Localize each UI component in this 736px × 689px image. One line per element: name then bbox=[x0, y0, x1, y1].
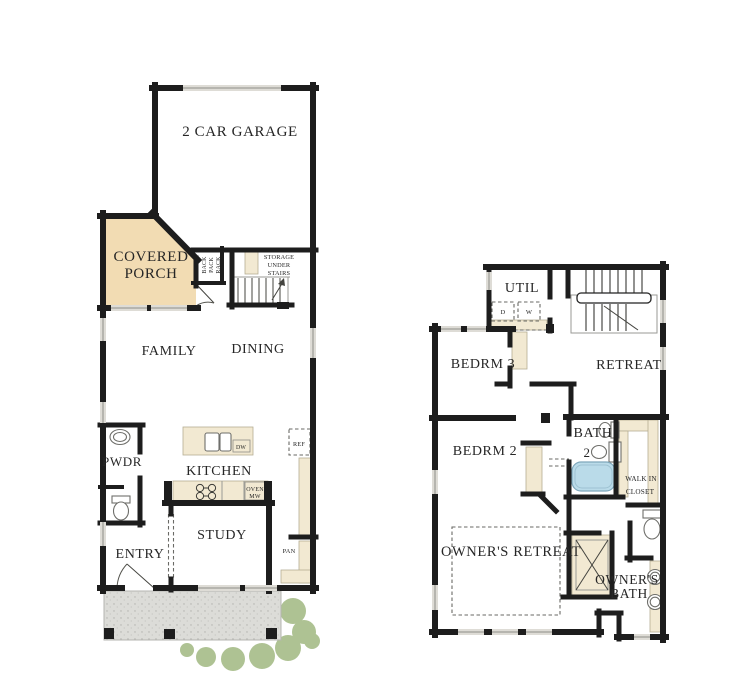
bathtub-icon bbox=[572, 462, 615, 491]
svg-text:STAIRS: STAIRS bbox=[268, 270, 291, 277]
first-floor-windows bbox=[103, 88, 313, 588]
kitchen-wall-counter bbox=[299, 458, 311, 535]
room-label-entry: ENTRY bbox=[116, 547, 165, 562]
room-label-bedrm3: BEDRM 3 bbox=[451, 357, 516, 372]
room-label-kitchen: KITCHEN bbox=[186, 464, 252, 479]
room-label-dining: DINING bbox=[231, 342, 284, 357]
svg-text:UNDER: UNDER bbox=[268, 262, 291, 269]
front-porch-concrete bbox=[104, 591, 281, 640]
pwdr-sink-icon bbox=[110, 430, 130, 445]
room-label-walk-in-closet-1: WALK IN bbox=[625, 475, 657, 483]
dryer-label: D bbox=[501, 309, 506, 316]
room-label-garage: 2 CAR GARAGE bbox=[182, 124, 298, 140]
entry-door bbox=[117, 564, 154, 588]
room-label-bath2-2: 2 bbox=[583, 445, 590, 460]
study-opening bbox=[169, 514, 174, 579]
room-label-util: UTIL bbox=[505, 281, 539, 296]
room-label-pwdr: PWDR bbox=[102, 454, 142, 469]
room-label-study: STUDY bbox=[197, 528, 247, 543]
bed-outline bbox=[452, 527, 560, 615]
room-label-retreat: RETREAT bbox=[596, 358, 662, 373]
pwdr-toilet-icon bbox=[112, 496, 130, 520]
island-sink-icon bbox=[205, 433, 219, 451]
floor-plan-drawing: 2 CAR GARAGE COVERED PORCH BACK PACK RAC… bbox=[0, 0, 736, 689]
oven-label: OVEN bbox=[246, 487, 264, 493]
washer-label: W bbox=[526, 309, 533, 316]
room-label-owners-bath-1: OWNER'S bbox=[595, 572, 659, 587]
bedrm2-closet-shelf bbox=[526, 447, 542, 493]
room-label-covered-porch-1: COVERED bbox=[113, 249, 188, 265]
svg-text:PACK: PACK bbox=[209, 257, 215, 273]
room-label-bedrm2: BEDRM 2 bbox=[453, 444, 518, 459]
pantry-shelf bbox=[281, 570, 311, 583]
room-label-bath2-1: BATH bbox=[574, 426, 613, 441]
microwave-label: MW bbox=[249, 494, 261, 500]
room-label-owners-retreat: OWNER'S RETREAT bbox=[441, 544, 581, 560]
svg-text:STORAGE: STORAGE bbox=[264, 254, 294, 261]
first-floor-walls bbox=[100, 85, 316, 591]
hall-opening bbox=[549, 459, 569, 466]
storage-under-stairs-label: STORAGE UNDER STAIRS bbox=[264, 254, 294, 277]
island-sink-icon bbox=[220, 433, 231, 451]
pantry-label: PAN bbox=[283, 548, 296, 555]
owners-toilet-icon bbox=[643, 510, 661, 539]
storage-shelf bbox=[245, 252, 258, 274]
svg-text:BACK: BACK bbox=[202, 256, 208, 274]
porch-door bbox=[196, 284, 214, 306]
floor-plan-page: 2 CAR GARAGE COVERED PORCH BACK PACK RAC… bbox=[0, 0, 736, 689]
room-label-owners-bath-2: BATH bbox=[610, 586, 648, 601]
room-label-family: FAMILY bbox=[142, 344, 197, 359]
fridge-label: REF bbox=[293, 441, 305, 448]
closet-shelf-top bbox=[619, 420, 649, 431]
second-floor-plan: UTIL D W BEDRM 3 RETREAT BEDRM 2 BATH 2 … bbox=[432, 264, 666, 640]
room-label-walk-in-closet-2: CLOSET bbox=[626, 488, 655, 496]
back-pack-rack-label: BACK PACK RACK bbox=[202, 256, 222, 274]
room-label-covered-porch-2: PORCH bbox=[124, 266, 177, 282]
first-floor-plan: 2 CAR GARAGE COVERED PORCH BACK PACK RAC… bbox=[100, 85, 320, 671]
svg-text:RACK: RACK bbox=[216, 256, 222, 274]
dishwasher-label: DW bbox=[236, 445, 246, 451]
stairs-icon bbox=[571, 267, 657, 333]
